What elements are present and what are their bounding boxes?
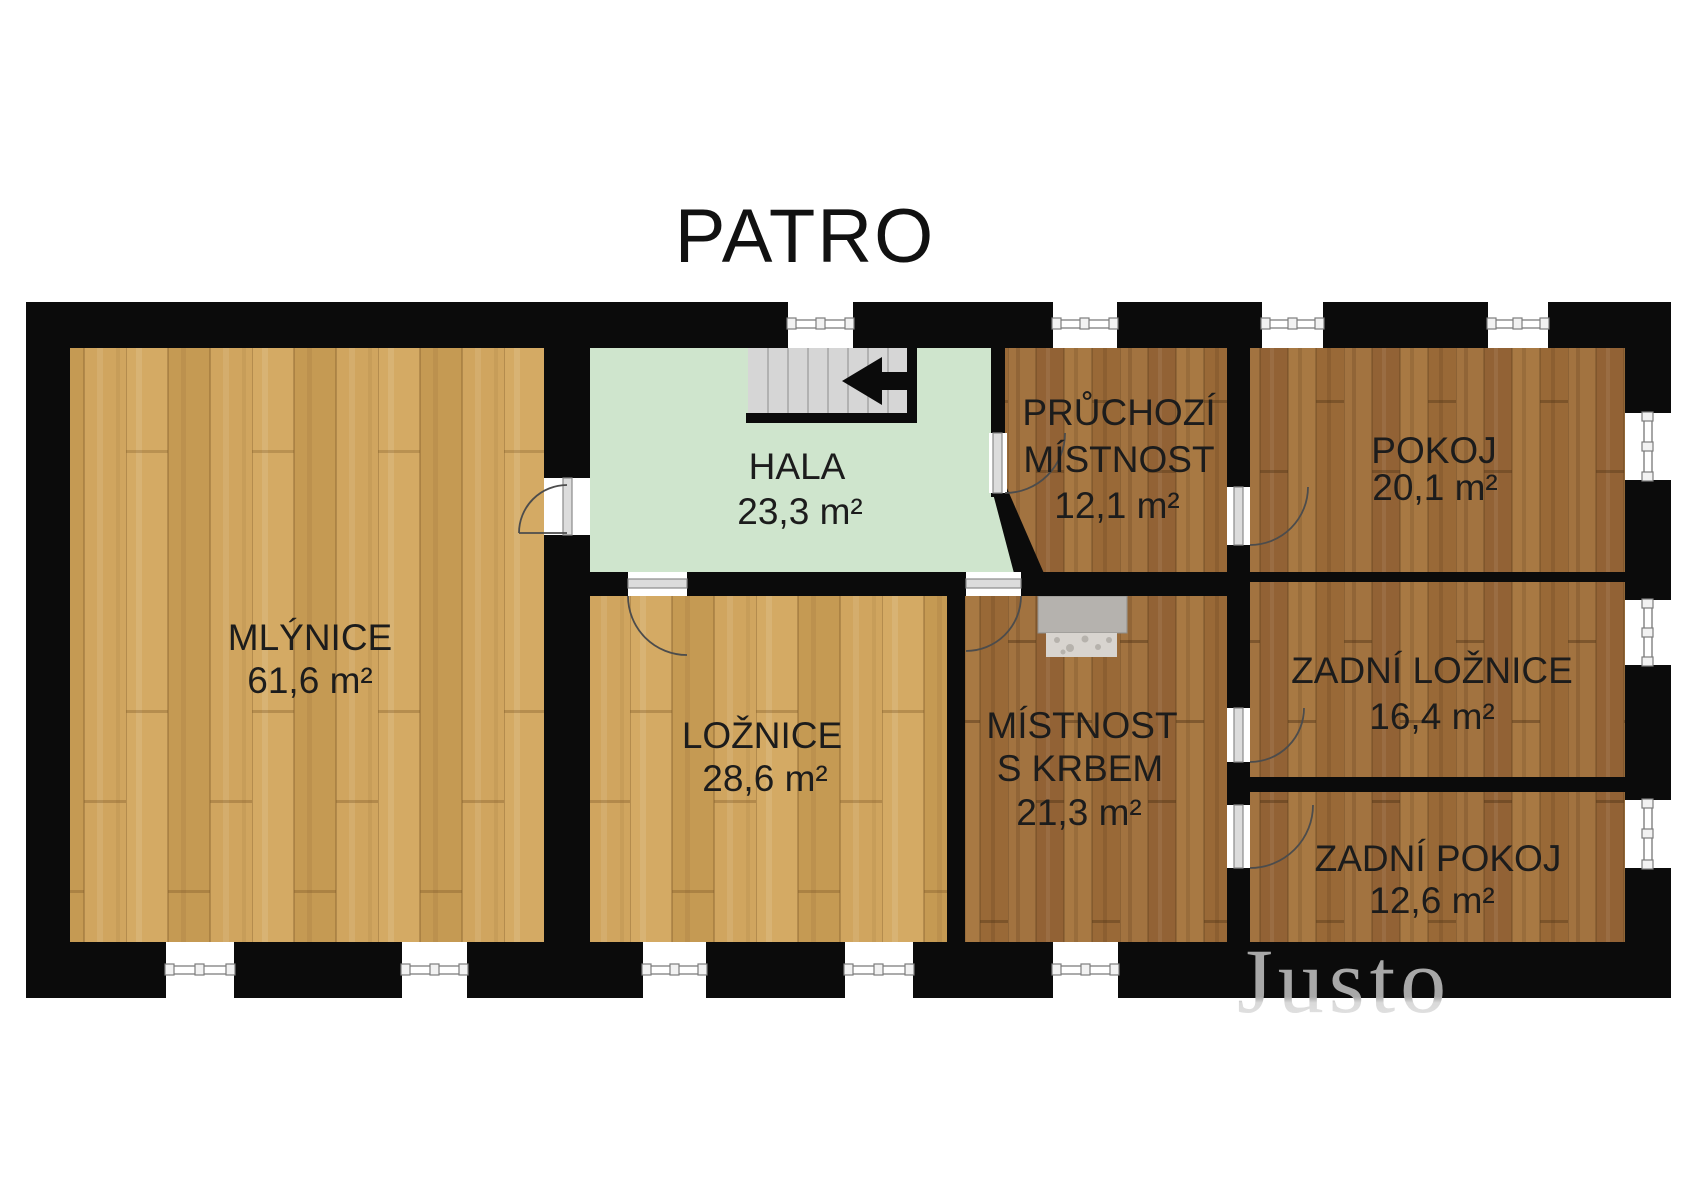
wall-hala-loznice	[590, 572, 1250, 596]
floor-plan-canvas: PATRO	[0, 0, 1697, 1200]
wall-mlynice-hala	[544, 348, 590, 942]
room-area-pokoj: 20,1 m²	[1372, 467, 1497, 508]
wall-loznice-krbem	[947, 596, 965, 942]
room-area-zadni-pokoj: 12,6 m²	[1369, 880, 1494, 921]
room-label-zadni-pokoj: ZADNÍ POKOJ	[1315, 838, 1562, 879]
window-hala-top	[787, 300, 854, 348]
watermark: Justo	[1237, 930, 1451, 1032]
room-area-krbem: 21,3 m²	[1016, 792, 1141, 833]
fireplace-hearth	[1046, 633, 1117, 657]
room-label-pruchozi-line1: PRŮCHOZÍ	[1022, 391, 1216, 433]
window-krbem-bottom	[1052, 942, 1119, 998]
window-mlynice-bottom-right	[401, 942, 468, 998]
room-label-mlynice: MLÝNICE	[228, 617, 392, 658]
room-label-krbem-line2: S KRBEM	[997, 748, 1164, 789]
window-zadni-pokoj-right	[1625, 799, 1671, 869]
staircase	[746, 348, 917, 423]
window-pokoj-right	[1625, 412, 1671, 481]
window-pokoj-top-right	[1487, 300, 1549, 348]
window-zadni-loznice-right	[1625, 599, 1671, 666]
staircase-bottom-edge	[746, 413, 917, 423]
window-mlynice-bottom-left	[165, 942, 235, 998]
room-area-mlynice: 61,6 m²	[247, 660, 372, 701]
floor-plan-page: PATRO	[0, 0, 1697, 1200]
wall-pokoj-zadni-loznice	[1250, 572, 1625, 582]
fireplace-body	[1038, 596, 1127, 633]
room-area-loznice: 28,6 m²	[702, 758, 827, 799]
room-label-krbem-line1: MÍSTNOST	[986, 705, 1177, 746]
window-loznice-bottom-left	[642, 942, 707, 998]
page-title: PATRO	[675, 194, 936, 279]
room-area-hala: 23,3 m²	[737, 491, 862, 532]
room-label-loznice: LOŽNICE	[682, 715, 842, 756]
room-label-pokoj: POKOJ	[1371, 430, 1496, 471]
fireplace	[1038, 596, 1127, 657]
window-pruchozi-top	[1052, 300, 1118, 348]
window-pokoj-top-left	[1261, 300, 1324, 348]
wall-zadni-loznice-zadni-pokoj	[1250, 777, 1625, 792]
room-label-hala: HALA	[749, 446, 846, 487]
room-area-pruchozi: 12,1 m²	[1054, 485, 1179, 526]
room-area-zadni-loznice: 16,4 m²	[1369, 696, 1494, 737]
room-label-zadni-loznice: ZADNÍ LOŽNICE	[1291, 650, 1573, 691]
window-loznice-bottom-right	[844, 942, 914, 998]
wall-outer-left	[26, 302, 70, 998]
room-label-pruchozi-line2: MÍSTNOST	[1023, 439, 1214, 480]
